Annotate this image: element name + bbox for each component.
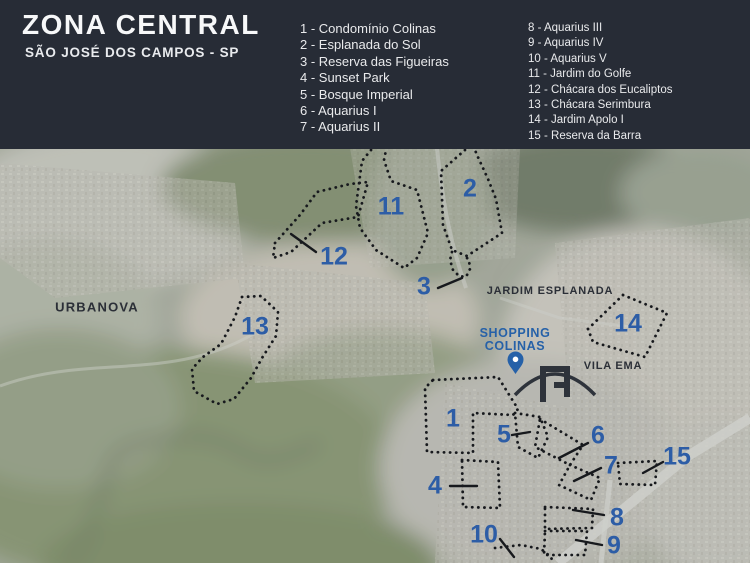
map-marker-12: 12 <box>320 243 348 272</box>
legend-item-14: 14 - Jardim Apolo I <box>528 113 672 128</box>
header: ZONA CENTRAL SÃO JOSÉ DOS CAMPOS - SP 1 … <box>0 0 750 149</box>
legend-item-5: 5 - Bosque Imperial <box>300 87 449 103</box>
zona-central-infographic: ZONA CENTRAL SÃO JOSÉ DOS CAMPOS - SP 1 … <box>0 0 750 563</box>
legend-item-2: 2 - Esplanada do Sol <box>300 37 449 53</box>
region-outline-8 <box>545 507 593 529</box>
pointer-line-12 <box>291 234 316 252</box>
arch-monument-icon <box>515 369 595 402</box>
legend-item-13: 13 - Chácara Serimbura <box>528 98 672 113</box>
legend-column-2: 8 - Aquarius III 9 - Aquarius IV 10 - Aq… <box>528 21 672 144</box>
pointer-line-8 <box>573 510 604 515</box>
map-marker-8: 8 <box>610 504 624 533</box>
pointer-line-3 <box>438 278 462 288</box>
map-marker-2: 2 <box>463 175 477 204</box>
legend-item-15: 15 - Reserva da Barra <box>528 129 672 144</box>
pointer-line-5 <box>512 432 530 435</box>
legend-item-3: 3 - Reserva das Figueiras <box>300 54 449 70</box>
map-marker-10: 10 <box>470 521 498 550</box>
title-block: ZONA CENTRAL SÃO JOSÉ DOS CAMPOS - SP <box>22 10 260 60</box>
map-marker-9: 9 <box>607 532 621 561</box>
pointer-line-15 <box>643 462 663 473</box>
region-outline-4 <box>462 460 500 508</box>
page-title: ZONA CENTRAL <box>22 10 260 41</box>
map-marker-15: 15 <box>663 443 691 472</box>
legend-item-9: 9 - Aquarius IV <box>528 36 672 51</box>
map-marker-14: 14 <box>614 310 642 339</box>
legend-item-4: 4 - Sunset Park <box>300 70 449 86</box>
area-label-jardim-esplanada: JARDIM ESPLANADA <box>487 285 613 297</box>
shopping-colinas-line2: COLINAS <box>480 340 551 353</box>
area-label-vila-ema: VILA EMA <box>584 360 643 372</box>
pointer-line-7 <box>574 468 601 481</box>
page-subtitle: SÃO JOSÉ DOS CAMPOS - SP <box>22 45 260 60</box>
legend-item-12: 12 - Chácara dos Eucaliptos <box>528 83 672 98</box>
map-marker-6: 6 <box>591 422 605 451</box>
location-pin-icon <box>505 350 526 375</box>
legend-item-1: 1 - Condomínio Colinas <box>300 21 449 37</box>
legend-item-11: 11 - Jardim do Golfe <box>528 67 672 82</box>
map-marker-3: 3 <box>417 273 431 302</box>
area-label-urbanova: URBANOVA <box>55 300 139 315</box>
map-marker-13: 13 <box>241 313 269 342</box>
legend-item-7: 7 - Aquarius II <box>300 119 449 135</box>
satellite-map: URBANOVA JARDIM ESPLANADA VILA EMA SHOPP… <box>0 148 750 563</box>
region-outline-9 <box>544 531 587 555</box>
area-label-shopping-colinas: SHOPPING COLINAS <box>480 327 551 353</box>
legend-column-1: 1 - Condomínio Colinas 2 - Esplanada do … <box>300 21 449 136</box>
map-marker-11: 11 <box>378 193 404 222</box>
legend-item-10: 10 - Aquarius V <box>528 52 672 67</box>
region-outline-10 <box>495 545 553 563</box>
region-outline-15 <box>618 461 657 485</box>
map-marker-4: 4 <box>428 472 442 501</box>
pointer-line-6 <box>559 443 588 458</box>
legend-item-8: 8 - Aquarius III <box>528 21 672 36</box>
map-marker-7: 7 <box>604 452 618 481</box>
region-overlay <box>0 148 750 563</box>
pointer-line-9 <box>576 540 602 545</box>
map-marker-5: 5 <box>497 421 511 450</box>
legend-item-6: 6 - Aquarius I <box>300 103 449 119</box>
map-marker-1: 1 <box>446 405 460 434</box>
